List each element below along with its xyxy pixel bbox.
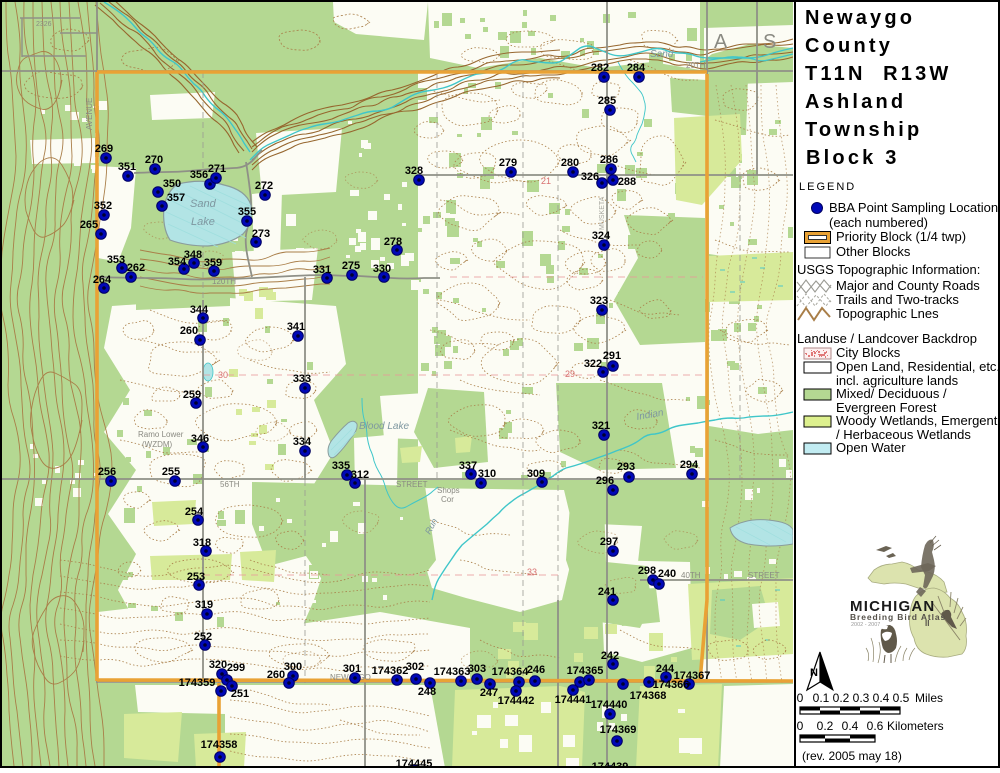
svg-text:174440: 174440 [591, 699, 628, 711]
svg-text:324: 324 [592, 230, 611, 242]
svg-text:330: 330 [373, 263, 391, 275]
svg-text:0.1: 0.1 [813, 691, 830, 705]
svg-text:120TH: 120TH [212, 277, 236, 286]
svg-text:174441: 174441 [555, 694, 592, 706]
svg-text:259: 259 [183, 389, 201, 401]
svg-text:0.6: 0.6 [867, 719, 884, 733]
svg-text:348: 348 [184, 249, 202, 261]
svg-text:Township: Township [805, 119, 922, 141]
svg-text:280: 280 [561, 157, 579, 169]
svg-text:296: 296 [596, 475, 614, 487]
svg-text:335: 335 [332, 460, 350, 472]
svg-text:Blood Lake: Blood Lake [359, 421, 409, 432]
svg-text:0.4: 0.4 [873, 691, 890, 705]
svg-text:297: 297 [600, 536, 618, 548]
svg-text:Priority Block (1/4 twp): Priority Block (1/4 twp) [836, 229, 966, 244]
svg-text:(rev. 2005 may 18): (rev. 2005 may 18) [802, 749, 902, 763]
svg-text:248: 248 [418, 686, 436, 698]
svg-text:II: II [925, 619, 929, 628]
svg-text:254: 254 [185, 506, 204, 518]
svg-text:300: 300 [284, 661, 302, 673]
svg-text:241: 241 [598, 586, 616, 598]
svg-text:0.3: 0.3 [853, 691, 870, 705]
svg-text:STREET: STREET [748, 571, 780, 580]
svg-text:278: 278 [384, 236, 402, 248]
svg-text:252: 252 [194, 631, 212, 643]
svg-text:T11N R13W: T11N R13W [805, 63, 951, 85]
svg-text:Woody Wetlands, Emergent: Woody Wetlands, Emergent [836, 413, 998, 428]
svg-text:356: 356 [190, 169, 208, 181]
svg-text:174364: 174364 [492, 666, 530, 678]
svg-text:320: 320 [209, 659, 227, 671]
svg-text:312: 312 [351, 469, 369, 481]
svg-text:284: 284 [627, 62, 646, 74]
svg-text:Kilometers: Kilometers [887, 719, 944, 733]
svg-text:30: 30 [218, 370, 228, 380]
svg-text:341: 341 [287, 321, 305, 333]
svg-text:N: N [810, 667, 818, 679]
svg-text:STREET: STREET [396, 480, 428, 489]
svg-text:Miles: Miles [915, 691, 943, 705]
svg-text:331: 331 [313, 264, 331, 276]
svg-text:282: 282 [591, 62, 609, 74]
svg-text:355: 355 [238, 206, 256, 218]
svg-text:328: 328 [405, 165, 423, 177]
svg-text:291: 291 [603, 350, 621, 362]
svg-text:174369: 174369 [600, 724, 637, 736]
svg-text:174442: 174442 [498, 695, 535, 707]
svg-text:346: 346 [191, 433, 209, 445]
svg-text:299: 299 [227, 662, 245, 674]
svg-text:344: 344 [190, 304, 209, 316]
svg-text:337: 337 [459, 460, 477, 472]
svg-text:0.4: 0.4 [842, 719, 859, 733]
svg-text:Major and County Roads: Major and County Roads [836, 278, 980, 293]
svg-text:0.2: 0.2 [833, 691, 850, 705]
svg-text:350: 350 [163, 178, 181, 190]
svg-text:294: 294 [680, 459, 699, 471]
svg-text:255: 255 [162, 466, 180, 478]
svg-text:2002 - 2007: 2002 - 2007 [851, 622, 880, 628]
svg-text:272: 272 [255, 180, 273, 192]
svg-text:BBA Point Sampling Locations: BBA Point Sampling Locations [829, 200, 1000, 215]
svg-text:City Blocks: City Blocks [836, 345, 901, 360]
svg-text:0.2: 0.2 [817, 719, 834, 733]
svg-text:33: 33 [527, 567, 537, 577]
svg-text:S: S [763, 31, 776, 53]
svg-text:288: 288 [618, 176, 636, 188]
svg-text:Trails and Two-tracks: Trails and Two-tracks [836, 292, 959, 307]
svg-text:310: 310 [478, 468, 496, 480]
svg-text:40TH: 40TH [681, 571, 701, 580]
svg-text:County: County [805, 35, 893, 57]
svg-text:323: 323 [590, 295, 608, 307]
svg-text:Landuse / Landcover Backdrop: Landuse / Landcover Backdrop [797, 331, 977, 346]
svg-text:351: 351 [118, 161, 136, 173]
svg-text:(WZDM): (WZDM) [142, 440, 173, 449]
svg-text:334: 334 [293, 436, 312, 448]
svg-text:Open Land, Residential, etc.: Open Land, Residential, etc. [836, 359, 1000, 374]
svg-text:Mixed/ Deciduous /: Mixed/ Deciduous / [836, 386, 947, 401]
svg-text:Other Blocks: Other Blocks [836, 244, 911, 259]
svg-text:251: 251 [231, 688, 249, 700]
svg-text:270: 270 [145, 154, 163, 166]
svg-text:359: 359 [204, 257, 222, 269]
svg-text:242: 242 [601, 650, 619, 662]
svg-text:0: 0 [797, 719, 804, 733]
svg-text:262: 262 [127, 262, 145, 274]
svg-text:301: 301 [343, 663, 361, 675]
svg-text:174365: 174365 [567, 665, 604, 677]
svg-text:293: 293 [617, 461, 635, 473]
svg-text:29: 29 [565, 369, 575, 379]
svg-text:174366: 174366 [653, 679, 690, 691]
svg-text:Block 3: Block 3 [806, 147, 900, 169]
svg-text:USGS Topographic Information:: USGS Topographic Information: [797, 262, 980, 277]
svg-text:302: 302 [406, 661, 424, 673]
svg-text:56TH: 56TH [220, 480, 240, 489]
svg-text:303: 303 [468, 663, 486, 675]
svg-text:AVENUE: AVENUE [85, 98, 94, 130]
svg-text:Newaygo: Newaygo [805, 7, 915, 29]
svg-text:318: 318 [193, 537, 211, 549]
svg-text:326: 326 [581, 171, 599, 183]
svg-text:(each numbered): (each numbered) [829, 215, 928, 230]
svg-text:269: 269 [95, 143, 113, 155]
svg-text:0: 0 [797, 691, 804, 705]
svg-text:253: 253 [187, 571, 205, 583]
svg-text:Sand: Sand [650, 49, 674, 60]
svg-text:321: 321 [592, 420, 610, 432]
svg-text:352: 352 [94, 200, 112, 212]
svg-text:285: 285 [598, 95, 616, 107]
svg-text:20TH: 20TH [686, 61, 706, 70]
svg-text:247: 247 [480, 687, 498, 699]
svg-text:174368: 174368 [630, 690, 667, 702]
svg-text:271: 271 [208, 163, 226, 175]
svg-text:309: 309 [527, 468, 545, 480]
svg-text:279: 279 [499, 157, 517, 169]
svg-text:357: 357 [167, 192, 185, 204]
svg-text:Cor: Cor [441, 495, 454, 504]
svg-text:174358: 174358 [201, 739, 238, 751]
svg-text:Shops: Shops [437, 486, 460, 495]
svg-text:LEGEND: LEGEND [799, 181, 856, 193]
svg-text:Lake: Lake [191, 216, 215, 228]
svg-text:353: 353 [107, 254, 125, 266]
svg-text:275: 275 [342, 260, 360, 272]
svg-text:0.5: 0.5 [893, 691, 910, 705]
svg-text:286: 286 [600, 154, 618, 166]
svg-text:273: 273 [252, 228, 270, 240]
svg-text:264: 264 [93, 274, 112, 286]
svg-text:319: 319 [195, 599, 213, 611]
svg-text:21: 21 [541, 176, 551, 186]
svg-text:2326: 2326 [36, 21, 52, 28]
svg-text:174359: 174359 [179, 677, 216, 689]
svg-text:322: 322 [584, 358, 602, 370]
svg-text:MUSKETA: MUSKETA [599, 196, 606, 230]
svg-text:Ashland: Ashland [805, 91, 906, 113]
svg-text:Breeding Bird Atlas: Breeding Bird Atlas [850, 612, 946, 622]
svg-text:Sand: Sand [190, 198, 217, 210]
svg-text:333: 333 [293, 373, 311, 385]
svg-text:256: 256 [98, 466, 116, 478]
svg-text:A: A [714, 31, 728, 53]
svg-text:Open Water: Open Water [836, 440, 906, 455]
svg-text:Topographic Lnes: Topographic Lnes [836, 306, 939, 321]
svg-text:260: 260 [180, 325, 198, 337]
svg-text:Ramo Lower: Ramo Lower [138, 430, 184, 439]
svg-text:240: 240 [658, 568, 676, 580]
svg-text:174363: 174363 [434, 666, 471, 678]
svg-text:246: 246 [527, 664, 545, 676]
svg-text:174362: 174362 [372, 665, 409, 677]
svg-text:260: 260 [267, 669, 285, 681]
svg-text:298: 298 [638, 565, 656, 577]
svg-text:244: 244 [656, 663, 675, 675]
svg-text:265: 265 [80, 219, 98, 231]
